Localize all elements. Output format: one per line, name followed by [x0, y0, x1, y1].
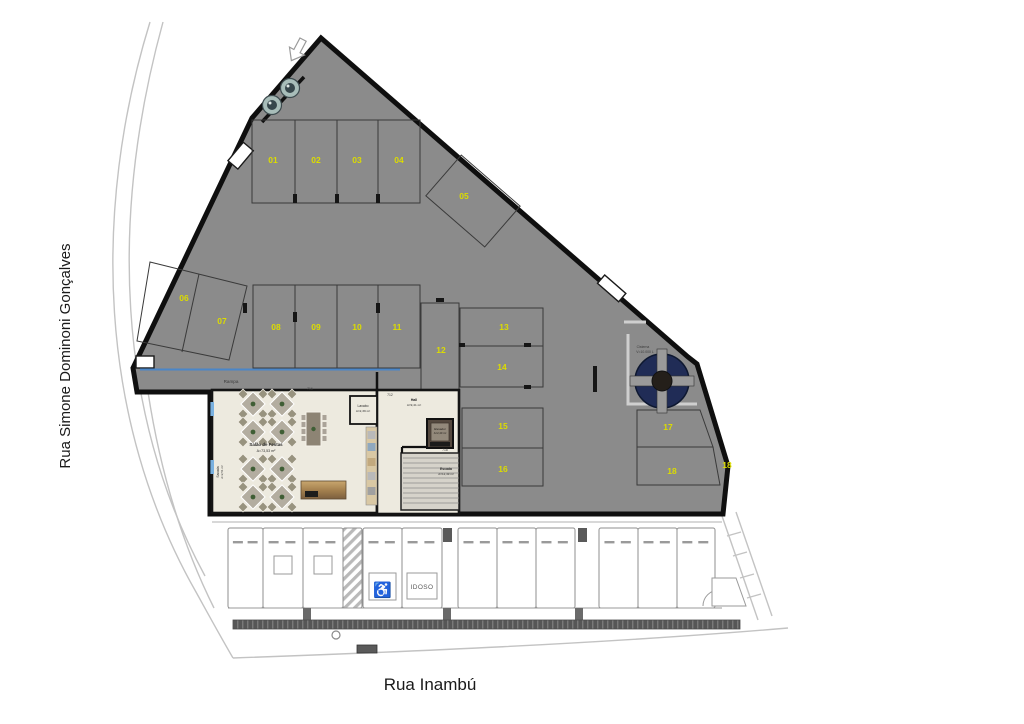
lavabo-label: Lavabo: [357, 404, 368, 408]
street-name-bottom: Rua Inambú: [384, 675, 477, 694]
cisterna-note: V=10.000 L: [636, 350, 654, 354]
sacada-area: A=2,51 m²: [220, 465, 224, 478]
lavabo-area: A=2,39 m²: [356, 409, 370, 413]
window-marker: [210, 402, 214, 416]
garage-box-plain: [599, 528, 638, 608]
garage-box-plain: [263, 528, 303, 608]
level-marker: 712: [387, 393, 393, 397]
parking-spot-label-03: 03: [352, 155, 362, 165]
parking-spot-label-15: 15: [498, 421, 508, 431]
table-with-chairs: [238, 454, 268, 484]
garage-box-plain: [303, 528, 343, 608]
garage-box-hatch: [343, 528, 362, 608]
escada-area: A=12,49 m²: [438, 472, 454, 476]
parking-spot-label-exterior: 18: [722, 460, 732, 470]
parking-spot-label-13: 13: [499, 322, 509, 332]
equipment-tank-icon: [281, 79, 300, 98]
corner-room: [712, 578, 746, 606]
elevador-label: Elevador: [434, 427, 445, 431]
parking-spot-label-08: 08: [271, 322, 281, 332]
table-with-chairs: [267, 454, 297, 484]
floor-plan-page: Cisterna V=10.000 L Rampa Lavabo A=2,39 …: [0, 0, 1024, 724]
salao-area: A=73,53 m²: [257, 449, 276, 453]
elevator-shaft: Elevador A=2,40 m²: [427, 419, 453, 448]
parking-spot-label-06: 06: [179, 293, 189, 303]
level-marker: 716: [307, 387, 313, 391]
idoso-space-label: IDOSO: [411, 584, 434, 591]
equipment-tank-icon: [263, 96, 282, 115]
parking-spot-label-18: 18: [667, 466, 677, 476]
parking-spot-label-16: 16: [498, 464, 508, 474]
stairs: Escada A=12,49 m²: [401, 453, 459, 510]
parking-spot-label-09: 09: [311, 322, 321, 332]
garage-box-plain: [536, 528, 575, 608]
parking-spot-label-14: 14: [497, 362, 507, 372]
garage-row-area: ♿IDOSO: [212, 522, 746, 653]
sacada-label-group: Sacada A=2,51 m²: [216, 465, 224, 478]
parking-spot-label-07: 07: [217, 316, 227, 326]
site-plan-svg: Cisterna V=10.000 L Rampa Lavabo A=2,39 …: [0, 0, 1024, 724]
window-marker: [210, 460, 214, 474]
garage-box-plain: [677, 528, 715, 608]
street-fence: [233, 620, 740, 629]
cisterna-label: Cisterna: [637, 345, 650, 349]
table-with-chairs: [267, 482, 297, 512]
parking-spot-label-01: 01: [268, 155, 278, 165]
bar-counter: [301, 481, 346, 499]
garage-box-plain: [497, 528, 536, 608]
elevador-area: A=2,40 m²: [434, 431, 447, 435]
garage-box-plain: [638, 528, 677, 608]
wheelchair-icon: ♿: [373, 581, 392, 599]
table-with-chairs: [267, 389, 297, 419]
parking-spot-label-12: 12: [436, 345, 446, 355]
parking-spot-label-11: 11: [393, 322, 402, 332]
escada-label: Escada: [440, 467, 452, 471]
parking-spot-label-17: 17: [663, 422, 673, 432]
garage-box-accessible: ♿: [363, 528, 402, 608]
gate-block: [357, 645, 377, 653]
hall-label: Hall: [411, 398, 418, 402]
kitchen-strip: [366, 427, 377, 505]
garage-boxes: ♿IDOSO: [228, 528, 715, 608]
salao-label: Salão de Festas: [249, 442, 283, 447]
table-with-chairs: [238, 389, 268, 419]
garage-box-plain: [228, 528, 263, 608]
long-table: [302, 412, 327, 446]
parking-spot-label-04: 04: [394, 155, 404, 165]
street-name-left: Rua Simone Dominoni Gonçalves: [57, 243, 74, 468]
rampa-label: Rampa: [224, 379, 239, 384]
party-hall-building: Lavabo A=2,39 m² Hall A=9,41 m² Elevador…: [210, 387, 459, 514]
parking-spot-label-10: 10: [352, 322, 362, 332]
hall-area: A=9,41 m²: [407, 403, 421, 407]
fence-detail-circle: [332, 631, 340, 639]
table-with-chairs: [238, 482, 268, 512]
parking-spot-label-05: 05: [459, 191, 469, 201]
garage-box-plain: [458, 528, 497, 608]
parking-spot-label-02: 02: [311, 155, 321, 165]
level-marker: 718: [442, 448, 448, 452]
garage-box-idoso: IDOSO: [402, 528, 442, 608]
